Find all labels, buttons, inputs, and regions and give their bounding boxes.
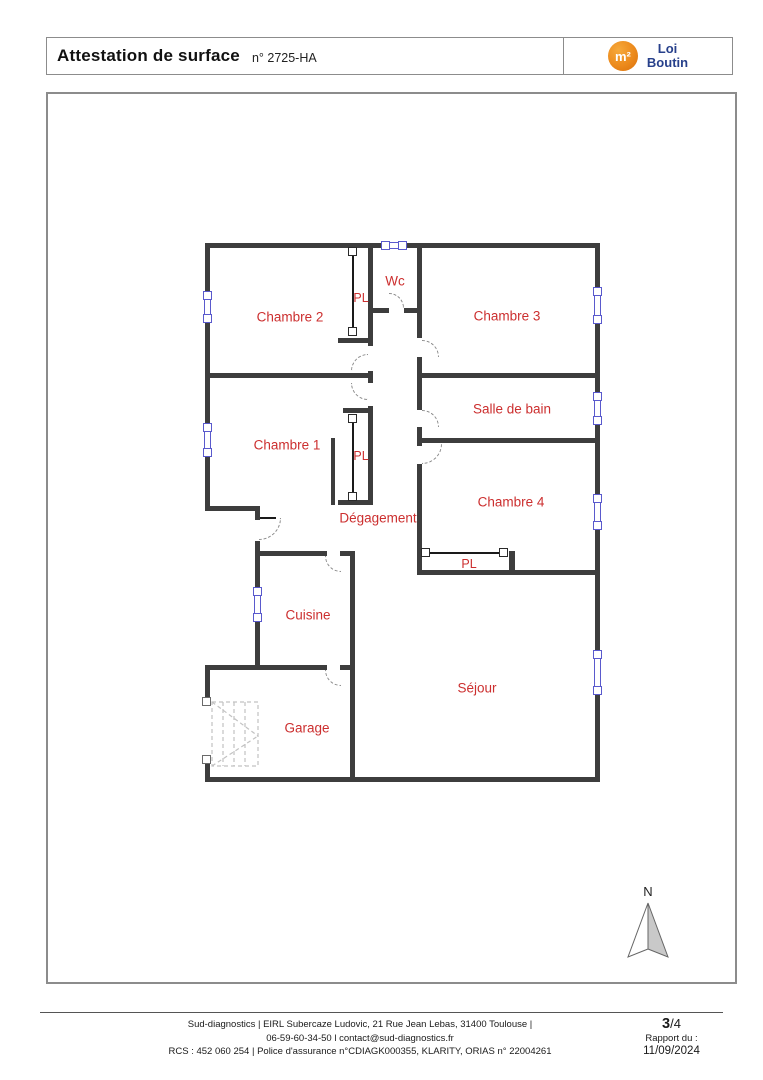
floor-plan-frame — [46, 92, 737, 984]
attestation-page: { "header": { "title": "Attestation de s… — [0, 0, 763, 1080]
footer-page-block: 3/4 Rapport du : 11/09/2024 — [620, 1016, 723, 1057]
footer-line-2: 06-59-60-34-50 l contact@sud-diagnostics… — [125, 1032, 595, 1046]
header-title-cell: Attestation de surface n° 2725-HA — [47, 38, 563, 74]
page-title: Attestation de surface — [57, 46, 240, 66]
footer-line-1: Sud-diagnostics | EIRL Subercaze Ludovic… — [125, 1018, 595, 1032]
footer-company-info: Sud-diagnostics | EIRL Subercaze Ludovic… — [125, 1018, 595, 1059]
logo-text: Loi Boutin — [647, 42, 688, 70]
document-number: n° 2725-HA — [252, 51, 317, 65]
page-number: 3/4 — [620, 1016, 723, 1032]
loi-boutin-logo: m² Loi Boutin — [563, 38, 732, 74]
footer-line-3: RCS : 452 060 254 | Police d'assurance n… — [125, 1045, 595, 1059]
header-bar: Attestation de surface n° 2725-HA m² Loi… — [46, 37, 733, 75]
report-date-value: 11/09/2024 — [620, 1045, 723, 1057]
report-date-label: Rapport du : — [620, 1033, 723, 1044]
page-footer: Sud-diagnostics | EIRL Subercaze Ludovic… — [40, 1012, 723, 1013]
m2-logo-icon: m² — [608, 41, 638, 71]
